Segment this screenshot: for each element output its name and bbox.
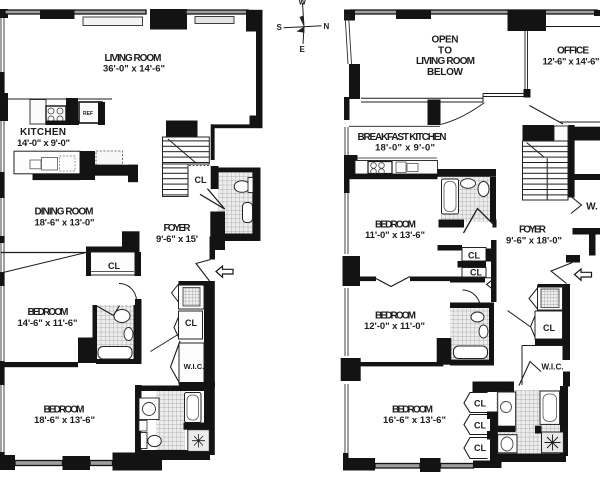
svg-text:16'-6" x 13'-6": 16'-6" x 13'-6" — [383, 415, 446, 426]
svg-text:CL: CL — [474, 443, 486, 453]
svg-text:BELOW: BELOW — [427, 67, 464, 78]
svg-text:12'-6" x 14'-6": 12'-6" x 14'-6" — [543, 57, 600, 68]
svg-text:LIVING ROOM: LIVING ROOM — [105, 53, 162, 64]
svg-text:REF: REF — [83, 111, 93, 117]
svg-text:18'-6" x 13'-6": 18'-6" x 13'-6" — [34, 415, 95, 426]
svg-text:BREAKFAST KITCHEN: BREAKFAST KITCHEN — [358, 132, 447, 143]
svg-text:14'-0" x 9'-0": 14'-0" x 9'-0" — [17, 138, 70, 149]
svg-text:LIVING ROOM: LIVING ROOM — [416, 56, 475, 67]
svg-text:W.I.C.: W.I.C. — [184, 362, 205, 371]
svg-text:CL: CL — [468, 251, 480, 261]
svg-text:W.I.C.: W.I.C. — [541, 363, 563, 372]
svg-text:N: N — [324, 22, 330, 31]
svg-text:BEDROOM: BEDROOM — [375, 311, 416, 322]
svg-text:18'-0" x 9'-0": 18'-0" x 9'-0" — [375, 143, 435, 154]
svg-text:FOYER: FOYER — [519, 225, 547, 236]
svg-text:9'-6" x 15': 9'-6" x 15' — [156, 234, 198, 245]
svg-text:TO: TO — [438, 46, 452, 57]
svg-text:9'-6" x 18'-0": 9'-6" x 18'-0" — [506, 236, 562, 247]
svg-text:36'-0" x 14'-6": 36'-0" x 14'-6" — [103, 64, 165, 75]
svg-text:CL: CL — [474, 421, 486, 431]
svg-text:12'-0" x 11'-0": 12'-0" x 11'-0" — [364, 321, 425, 332]
svg-text:FOYER: FOYER — [164, 223, 192, 234]
svg-text:14'-6" x 11'-6": 14'-6" x 11'-6" — [18, 318, 78, 329]
svg-text:OFFICE: OFFICE — [557, 46, 589, 57]
svg-text:KITCHEN: KITCHEN — [20, 127, 66, 138]
svg-text:OPEN: OPEN — [432, 35, 459, 46]
svg-text:CL: CL — [108, 261, 120, 271]
svg-text:CL: CL — [195, 175, 207, 185]
svg-text:W.: W. — [586, 202, 598, 213]
svg-text:DINING ROOM: DINING ROOM — [35, 207, 94, 218]
svg-text:CL: CL — [470, 268, 482, 278]
svg-text:E: E — [300, 45, 306, 54]
svg-text:BEDROOM: BEDROOM — [28, 307, 69, 318]
svg-text:S: S — [277, 23, 283, 32]
svg-text:BEDROOM: BEDROOM — [44, 405, 85, 416]
svg-text:18'-6" x 13'-0": 18'-6" x 13'-0" — [35, 218, 95, 229]
svg-text:CL: CL — [543, 323, 555, 333]
svg-text:CL: CL — [474, 399, 486, 409]
svg-text:BEDROOM: BEDROOM — [375, 220, 416, 231]
svg-text:W: W — [299, 0, 307, 7]
svg-text:CL: CL — [185, 318, 197, 328]
svg-text:BEDROOM: BEDROOM — [392, 405, 433, 416]
svg-text:11'-0" x 13'-6": 11'-0" x 13'-6" — [365, 230, 425, 241]
